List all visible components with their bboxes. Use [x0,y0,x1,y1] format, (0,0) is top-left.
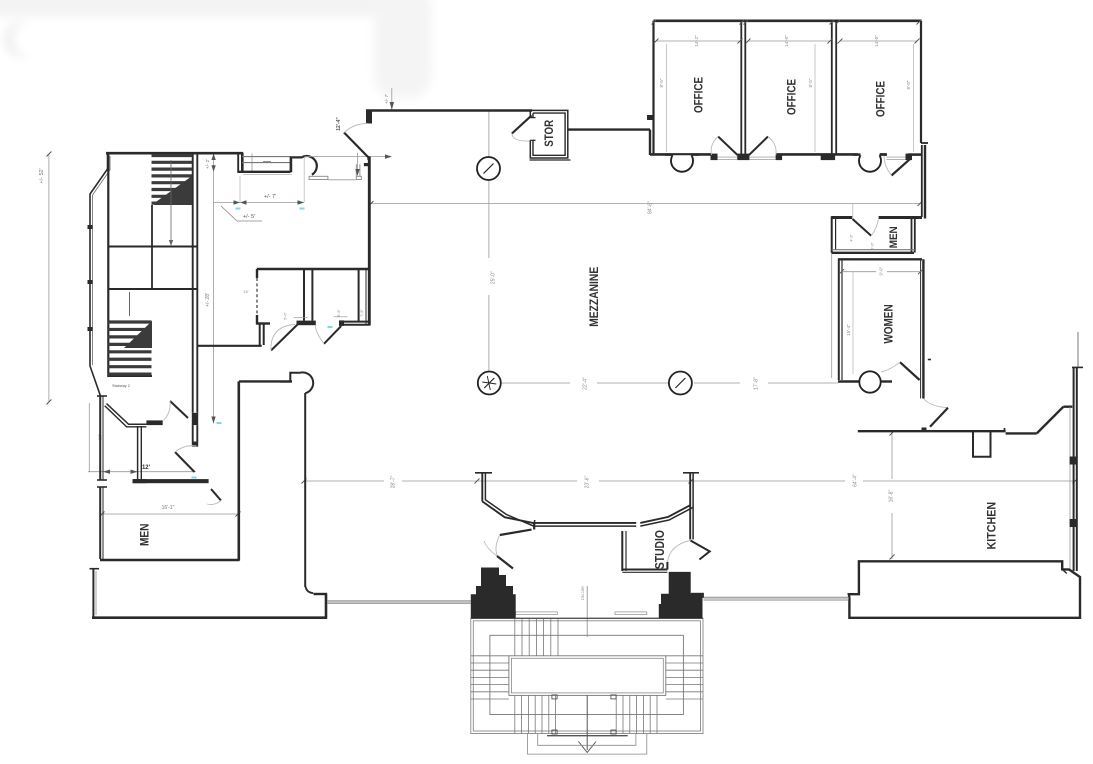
svg-text:5'-0": 5'-0" [284,312,288,320]
svg-text:MEN: MEN [139,524,151,546]
svg-text:12'-4": 12'-4" [336,117,342,131]
svg-text:+/- 2': +/- 2' [205,159,210,169]
svg-text:8'-5": 8'-5" [808,78,813,87]
svg-text:15': 15' [244,290,249,294]
svg-text:OFFICE: OFFICE [784,79,798,115]
svg-text:12': 12' [142,465,151,471]
svg-text:Stairway 2: Stairway 2 [112,384,130,388]
svg-text:8'-0": 8'-0" [906,80,911,89]
svg-text:14'-0": 14'-0" [874,35,879,47]
svg-text:9'-9": 9'-9" [879,266,884,275]
svg-text:7'-9": 7'-9" [360,309,364,317]
svg-text:8'-5": 8'-5" [659,78,664,87]
svg-text:28'-7": 28'-7" [391,475,397,488]
svg-text:KITCHEN: KITCHEN [985,502,999,550]
svg-text:MEZZANINE: MEZZANINE [589,267,601,327]
svg-text:DN-15R: DN-15R [581,586,585,600]
svg-text:22'-4": 22'-4" [583,377,589,390]
svg-text:23'-6": 23'-6" [585,475,591,488]
svg-text:25'-0": 25'-0" [491,271,497,284]
svg-text:17'-8": 17'-8" [754,377,760,390]
svg-text:OFFICE: OFFICE [692,77,706,113]
svg-text:+/- 28': +/- 28' [205,293,211,307]
svg-text:STOR: STOR [542,120,556,147]
svg-text:MEN: MEN [888,226,900,248]
svg-text:14'-2": 14'-2" [694,35,699,47]
svg-text:14'-0": 14'-0" [784,35,789,47]
svg-text:+/- 7': +/- 7' [384,94,389,104]
svg-text:WOMEN: WOMEN [881,304,895,343]
svg-text:15'-4": 15'-4" [846,324,851,336]
svg-text:OFFICE: OFFICE [874,81,888,117]
svg-text:+/- 5': +/- 5' [243,214,255,220]
svg-text:STUDIO: STUDIO [653,530,667,569]
svg-text:+/- 52': +/- 52' [39,168,45,183]
svg-text:16'-1": 16'-1" [162,505,175,511]
svg-text:5'-9": 5'-9" [337,309,341,317]
svg-text:4'-3": 4'-3" [850,234,854,242]
svg-text:7'-0": 7'-0" [871,242,875,250]
svg-text:84'-6": 84'-6" [647,201,653,214]
svg-text:+/- 7': +/- 7' [264,194,276,200]
svg-text:16'-8": 16'-8" [889,489,895,502]
svg-text:64'-4": 64'-4" [853,474,859,487]
